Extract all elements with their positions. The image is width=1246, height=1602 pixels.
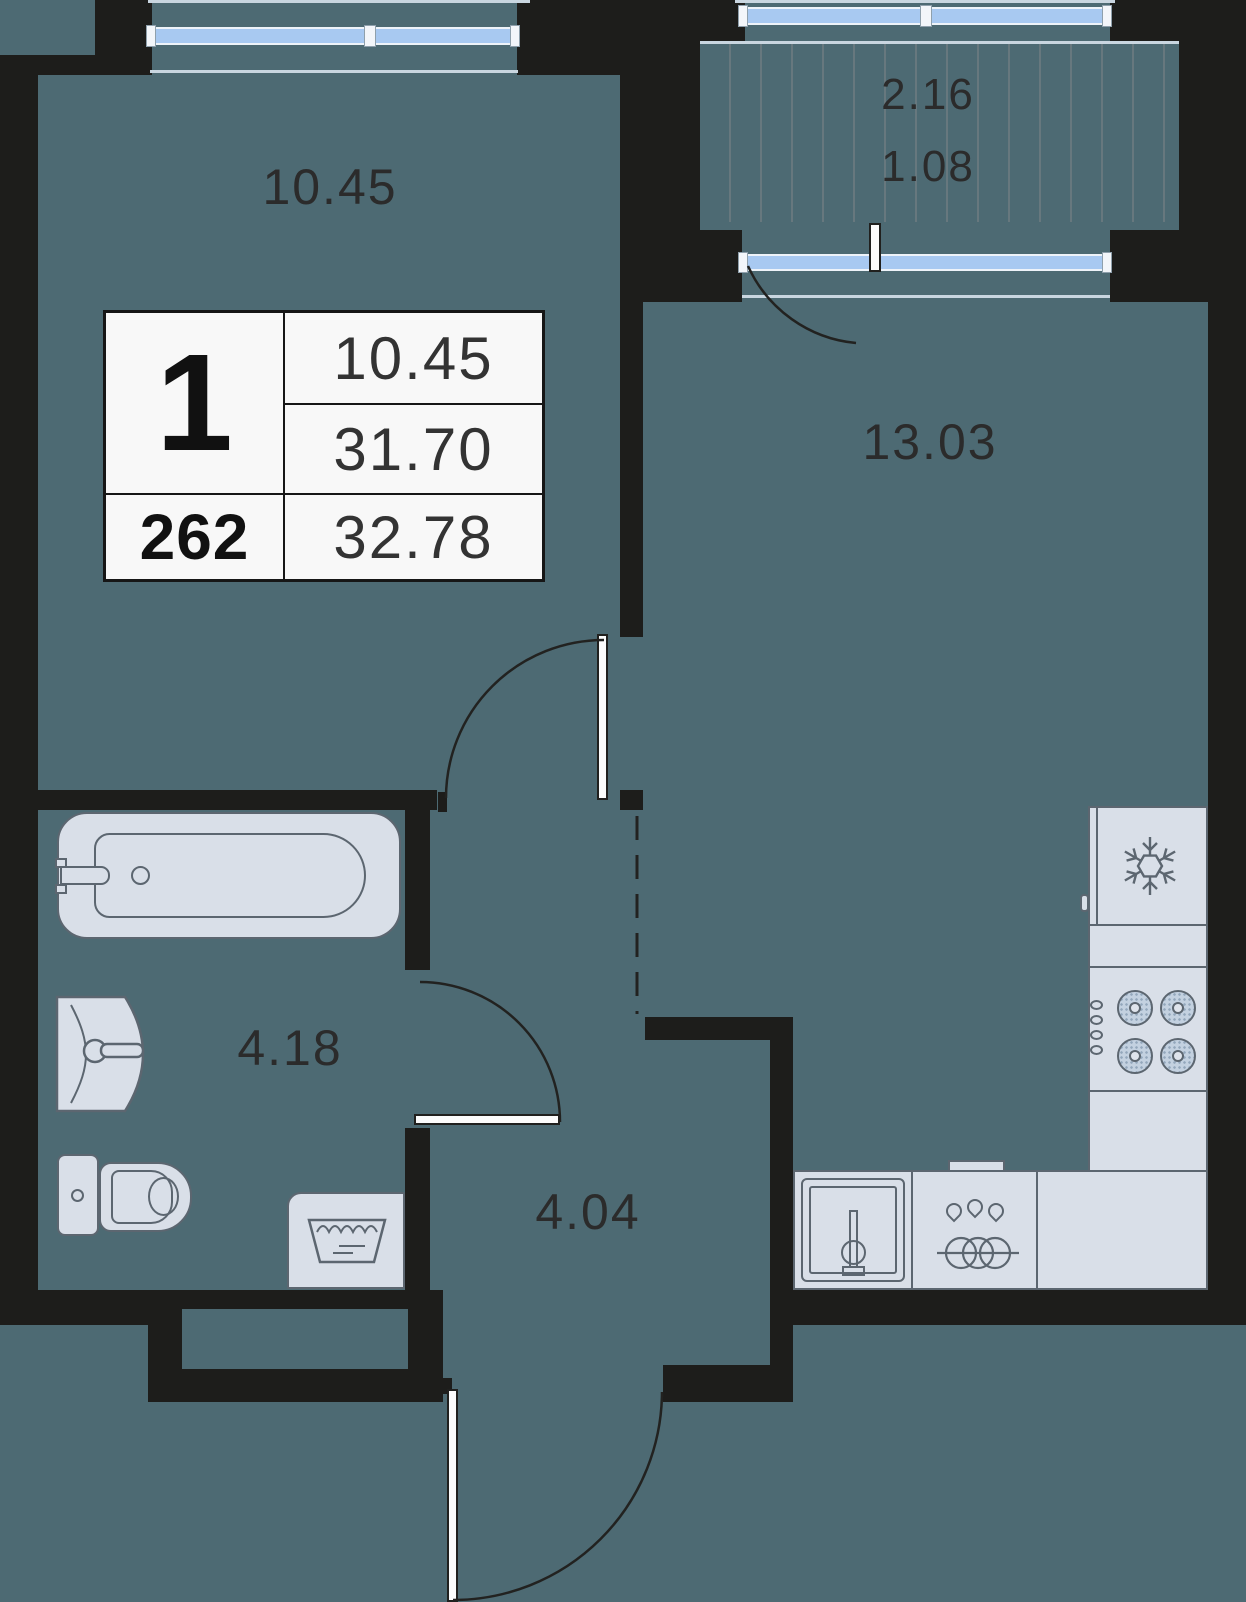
balcony-door-leaf [869, 223, 881, 272]
room-label-kitchen-living: 13.03 [862, 413, 997, 471]
room-label-living: 10.45 [262, 158, 397, 216]
toilet-oval [148, 1177, 179, 1216]
wall-rooms-divider [620, 302, 643, 637]
door-leaf-bathroom [414, 1114, 560, 1125]
wall-kitchen-bottom [770, 1290, 1246, 1325]
burner-icon [1117, 1038, 1153, 1074]
door-jamb-living [438, 792, 447, 812]
wall-right [1208, 302, 1246, 1325]
wall-bathroom-top [38, 790, 437, 810]
wall-top-left-corner [95, 0, 152, 58]
kitchen-faucet-icon [842, 1266, 865, 1276]
floor-plan: 10.45 13.03 4.18 4.04 2.16 1.08 1 10.45 … [0, 0, 1246, 1602]
bathtub-drain-icon [131, 866, 150, 885]
fridge-door-line [1096, 808, 1098, 924]
window-mullion [146, 25, 156, 47]
door-arc-bathroom [420, 982, 560, 1122]
wall-hall-divider-h [645, 1017, 793, 1040]
balcony-door-window [742, 254, 1110, 271]
counter-divider [1036, 1172, 1038, 1288]
total-area-value: 32.78 [285, 493, 542, 579]
window-sill-kitchen [742, 295, 1110, 298]
fridge-bottom-line [1088, 924, 1208, 926]
room-label-bathroom: 4.18 [237, 1019, 342, 1077]
window-living [150, 27, 518, 45]
stove-knob-icon [1090, 1030, 1103, 1040]
door-arc-living [446, 640, 604, 798]
wall-top-right-block [1110, 0, 1246, 43]
bathtub-faucet-icon [55, 884, 67, 894]
room-label-balcony-full: 2.16 [881, 70, 975, 120]
toilet-flush-icon [71, 1189, 84, 1202]
door-arc-balcony [748, 266, 856, 343]
stove-knob-icon [1090, 1015, 1103, 1025]
stove-knob-icon [1090, 1045, 1103, 1055]
wall-bathroom-bottom [0, 1290, 148, 1325]
balcony-floor-edge [700, 41, 1179, 44]
wall-balcony-left-top [620, 0, 745, 42]
window-mullion [738, 5, 748, 27]
burner-icon [1160, 990, 1196, 1026]
rooms-count: 1 [106, 313, 285, 493]
wall-entry-connector [770, 1325, 793, 1402]
stove-bottom-line [1088, 1090, 1208, 1092]
snowflake-icon [1119, 835, 1181, 897]
window-outer-ledge-living [148, 0, 530, 3]
wall-bathroom-right-upper [405, 810, 430, 970]
area-no-balcony-value: 31.70 [285, 405, 542, 493]
stove-knob-icon [1090, 1000, 1103, 1010]
balcony-outer-ledge [735, 0, 1115, 3]
wall-divider-cap [620, 790, 643, 810]
wall-top-right-of-window [517, 0, 620, 75]
window-mullion [1102, 5, 1112, 27]
plates-icon [933, 1228, 1023, 1276]
burner-icon [1160, 1038, 1196, 1074]
window-mullion [920, 5, 932, 27]
wall-hall-divider-v [770, 1040, 793, 1290]
window-mullion [510, 25, 520, 47]
door-leaf-living [597, 634, 608, 800]
bathtub-faucet-bar [60, 866, 110, 885]
washbasin [55, 993, 155, 1115]
counter-divider [911, 1172, 913, 1288]
fridge-handle [1080, 894, 1089, 912]
window-mullion [364, 25, 376, 47]
burner-icon [1117, 990, 1153, 1026]
door-leaf-entry [447, 1389, 458, 1602]
niche-opening [182, 1309, 408, 1369]
living-area-value: 10.45 [285, 313, 542, 405]
laundry-tub-icon [305, 1210, 389, 1268]
unit-number: 262 [106, 493, 285, 579]
door-arc-entry [453, 1392, 662, 1600]
window-mullion [1102, 252, 1112, 273]
counter-tab [948, 1160, 1005, 1172]
wall-balcony-right-bottom [1110, 230, 1246, 302]
wall-left [0, 55, 38, 1290]
room-label-balcony-reduced: 1.08 [881, 142, 975, 192]
window-mullion [738, 252, 748, 273]
wall-top-left [38, 55, 152, 75]
info-table: 1 10.45 31.70 262 32.78 [103, 310, 545, 582]
window-sill-living [150, 70, 518, 73]
room-label-hallway: 4.04 [535, 1183, 640, 1241]
counter-line [1088, 966, 1208, 968]
kitchen-faucet-icon [841, 1240, 866, 1265]
wall-balcony-left-bottom [620, 230, 742, 302]
wall-balcony-right [1179, 43, 1246, 230]
